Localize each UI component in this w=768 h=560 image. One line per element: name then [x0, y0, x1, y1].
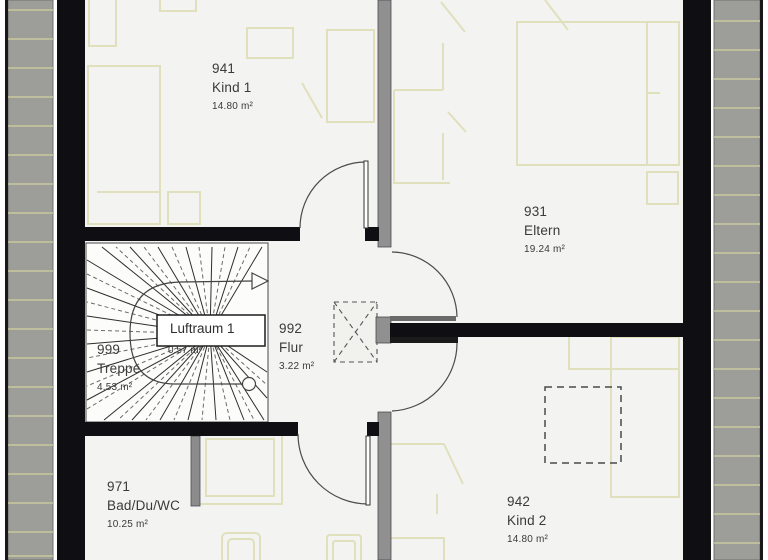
room-label-flur: 992 Flur 3.22 m² [279, 320, 314, 374]
roof-edge-line [5, 0, 8, 560]
stair-start-circle [243, 378, 256, 391]
room-area: 19.24 m² [524, 243, 565, 257]
wall-jamb-kind1 [365, 227, 379, 241]
room-area: 10.25 m² [107, 518, 180, 532]
partition-wall-cap [376, 317, 391, 343]
room-label-bad: 971 Bad/Du/WC 10.25 m² [107, 478, 180, 532]
luftraum-area: 0.57 m² [168, 345, 202, 356]
room-number: 941 [212, 60, 253, 79]
partition-wall-center-top [378, 0, 391, 247]
wall-kind1-stair [85, 227, 300, 241]
partition-wall-center-bottom [378, 412, 391, 560]
room-name: Eltern [524, 222, 565, 241]
room-name: Bad/Du/WC [107, 497, 180, 516]
room-number: 999 [97, 341, 140, 360]
room-label-eltern: 931 Eltern 19.24 m² [524, 203, 565, 257]
room-label-kind-2: 942 Kind 2 14.80 m² [507, 493, 548, 547]
wall-eltern-kind2 [390, 323, 683, 337]
room-area: 3.22 m² [279, 360, 314, 374]
room-area: 14.80 m² [507, 533, 548, 547]
room-number: 942 [507, 493, 548, 512]
room-area: 14.80 m² [212, 100, 253, 114]
room-number: 971 [107, 478, 180, 497]
roof-surface-left [5, 0, 53, 560]
room-number: 931 [524, 203, 565, 222]
exterior-wall-right [683, 0, 711, 560]
floor-plan: 941 Kind 1 14.80 m² 931 Eltern 19.24 m² … [0, 0, 768, 560]
room-area: 4.53 m² [97, 381, 140, 395]
exterior-wall-left [57, 0, 85, 560]
luftraum-label: Luftraum 1 [170, 321, 235, 336]
wall-stair-bad [85, 422, 298, 436]
room-name: Flur [279, 339, 314, 358]
roof-edge-line [760, 0, 763, 560]
room-label-kind-1: 941 Kind 1 14.80 m² [212, 60, 253, 114]
room-name: Treppe [97, 360, 140, 379]
shower-partition-wall [191, 436, 200, 506]
room-name: Kind 2 [507, 512, 548, 531]
wall-jamb-bad [367, 422, 379, 436]
floor-plan-drawing [0, 0, 768, 560]
room-number: 992 [279, 320, 314, 339]
roof-surface-right [714, 0, 763, 560]
shaft-symbol [334, 302, 377, 362]
room-name: Kind 1 [212, 79, 253, 98]
room-label-treppe: 999 Treppe 4.53 m² [97, 341, 140, 395]
